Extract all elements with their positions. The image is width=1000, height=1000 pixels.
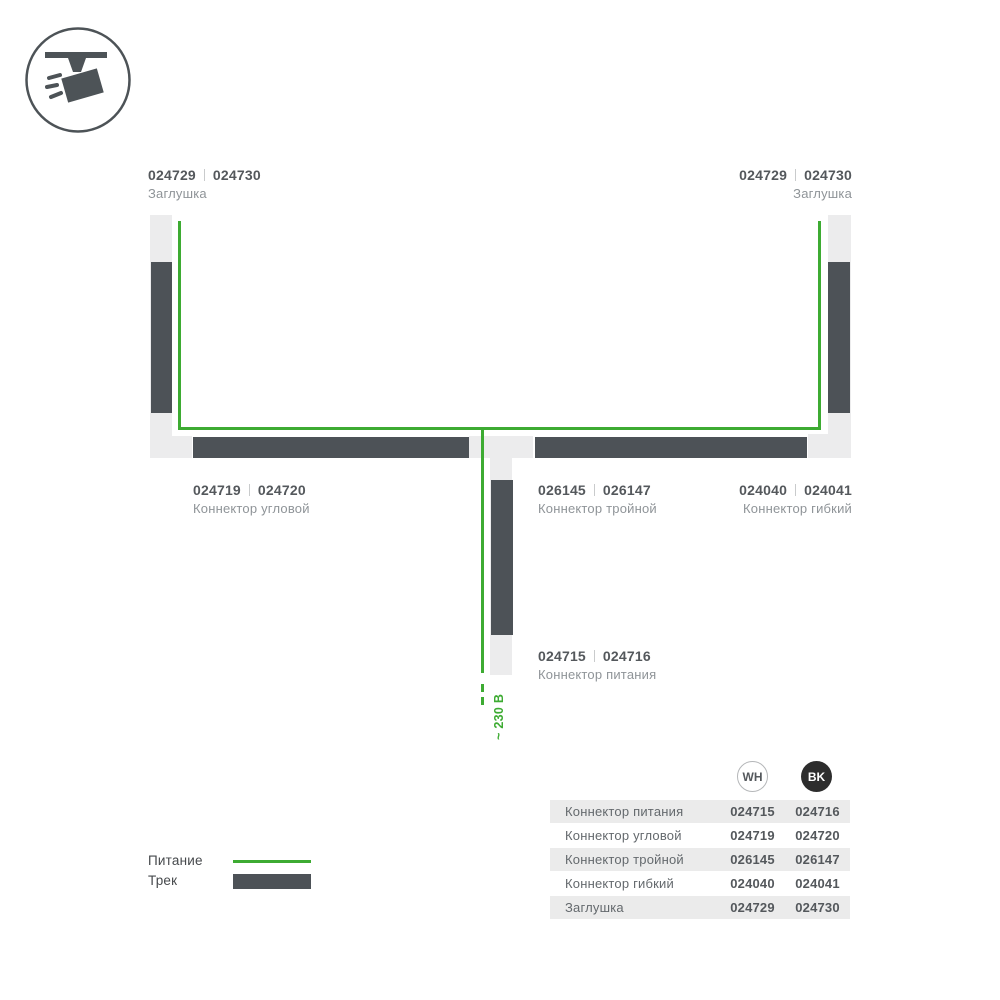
row-name: Коннектор гибкий [550, 876, 720, 891]
track-left-vertical [151, 262, 172, 413]
code-bk: 024716 [603, 648, 651, 664]
code-bk: 024730 [804, 167, 852, 183]
part-name: Заглушка [148, 186, 261, 201]
legend-track-label: Трек [148, 873, 177, 888]
table-row: Коннектор тройной 026145 026147 [550, 848, 850, 871]
code-wh: 024040 [739, 482, 787, 498]
part-name: Коннектор гибкий [739, 501, 852, 516]
code-divider [795, 484, 796, 496]
row-code-wh: 024719 [720, 828, 785, 843]
color-badge-wh: WH [737, 761, 768, 792]
code-wh: 024729 [739, 167, 787, 183]
row-code-wh: 024729 [720, 900, 785, 915]
label-endcap-top-right: 024729 024730 Заглушка [739, 167, 852, 201]
track-horizontal-right [535, 437, 807, 458]
parts-table-rows: Коннектор питания 024715 024716 Коннекто… [550, 800, 850, 920]
table-row: Заглушка 024729 024730 [550, 896, 850, 919]
row-code-bk: 024716 [785, 804, 850, 819]
color-badge-bk: BK [801, 761, 832, 792]
row-code-bk: 024720 [785, 828, 850, 843]
power-line-left [178, 221, 181, 428]
power-line-center [481, 430, 484, 673]
corner-connector-left [172, 436, 192, 458]
code-wh: 024715 [538, 648, 586, 664]
label-triple-connector: 026145 026147 Коннектор тройной [538, 482, 657, 516]
label-power-connector: 024715 024716 Коннектор питания [538, 648, 656, 682]
code-divider [594, 650, 595, 662]
power-line-horizontal [178, 427, 821, 430]
part-name: Заглушка [739, 186, 852, 201]
table-row: Коннектор гибкий 024040 024041 [550, 872, 850, 895]
track-right-vertical [828, 262, 850, 413]
code-divider [594, 484, 595, 496]
row-code-wh: 024040 [720, 876, 785, 891]
code-divider [795, 169, 796, 181]
code-bk: 024730 [213, 167, 261, 183]
parts-table: WH BK Коннектор питания 024715 024716 Ко… [550, 761, 850, 921]
code-bk: 024720 [258, 482, 306, 498]
legend-power-line [233, 860, 311, 863]
row-code-bk: 024730 [785, 900, 850, 915]
code-divider [249, 484, 250, 496]
power-line-dash-1 [481, 684, 484, 692]
row-code-wh: 024715 [720, 804, 785, 819]
triple-connector-body [469, 436, 533, 458]
code-divider [204, 169, 205, 181]
legend-power-label: Питание [148, 853, 203, 868]
table-row: Коннектор угловой 024719 024720 [550, 824, 850, 847]
row-name: Заглушка [550, 900, 720, 915]
power-line-dash-2 [481, 697, 484, 705]
row-name: Коннектор тройной [550, 852, 720, 867]
row-code-bk: 024041 [785, 876, 850, 891]
power-line-right [818, 221, 821, 428]
track-spotlight-icon [23, 25, 133, 135]
label-corner-connector: 024719 024720 Коннектор угловой [193, 482, 310, 516]
row-code-wh: 026145 [720, 852, 785, 867]
voltage-label: ~ 230 В [492, 694, 506, 740]
label-endcap-top-left: 024729 024730 Заглушка [148, 167, 261, 201]
track-horizontal-left [193, 437, 469, 458]
table-row: Коннектор питания 024715 024716 [550, 800, 850, 823]
row-name: Коннектор угловой [550, 828, 720, 843]
part-name: Коннектор угловой [193, 501, 310, 516]
row-code-bk: 026147 [785, 852, 850, 867]
legend-track-swatch [233, 874, 311, 889]
code-bk: 024041 [804, 482, 852, 498]
code-wh: 024729 [148, 167, 196, 183]
code-bk: 026147 [603, 482, 651, 498]
part-name: Коннектор тройной [538, 501, 657, 516]
part-name: Коннектор питания [538, 667, 656, 682]
icon-track-rail [45, 52, 107, 58]
row-name: Коннектор питания [550, 804, 720, 819]
code-wh: 026145 [538, 482, 586, 498]
catalog-diagram-page: ~ 230 В 024729 024730 Заглушка 024729 02… [0, 0, 1000, 1000]
code-wh: 024719 [193, 482, 241, 498]
flex-connector-right [808, 434, 829, 458]
track-center-vertical [491, 480, 513, 635]
label-flex-connector: 024040 024041 Коннектор гибкий [739, 482, 852, 516]
